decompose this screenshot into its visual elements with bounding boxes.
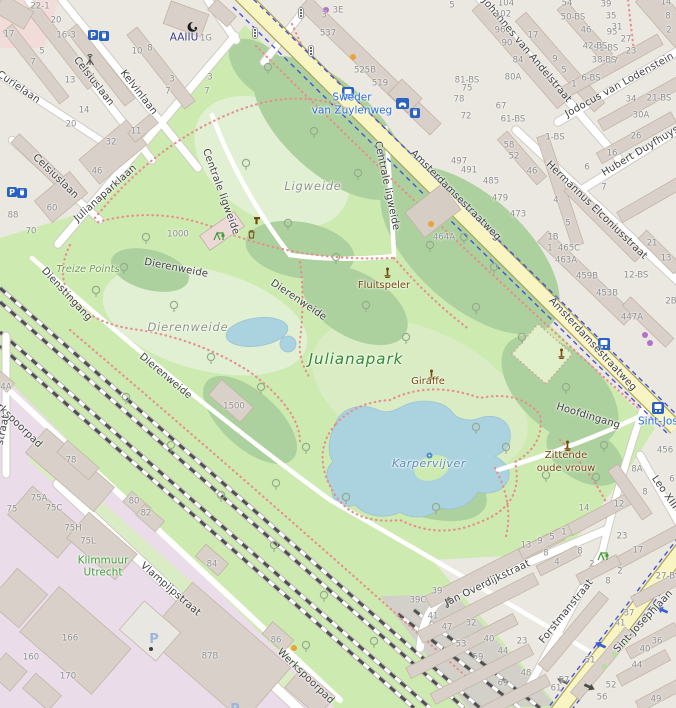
map-base-layer: [0, 0, 676, 708]
map-canvas[interactable]: PPPP CurielaanCelsiuslaanKelvinlaanCelsi…: [0, 0, 676, 708]
